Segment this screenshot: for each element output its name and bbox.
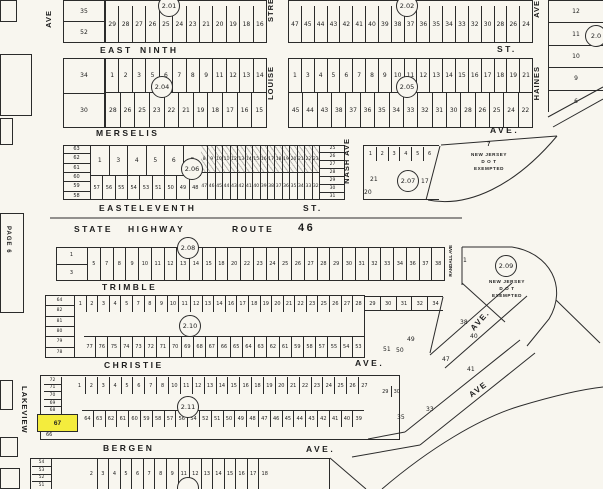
lot-number: 13 [237,146,244,172]
lot-number: 59 [63,181,90,190]
lot-number: 10 [168,377,180,394]
lot-number: 51 [32,481,51,489]
lot-number: 23 [312,146,319,172]
lot-number: 14 [213,296,225,312]
block-number-2-08: 2.08 [177,237,199,259]
lot-number: 38 [460,319,468,326]
lot-number: 72 [144,337,156,357]
block-number-2-09: 2.09 [495,255,517,277]
lot-number: 74 [120,337,132,357]
block-number-2-03: 2.0 [585,25,603,47]
lot-number: 41 [467,366,475,373]
nj-dot-exempted-note: NEW JERSEY D O T EXEMPTED [480,277,534,298]
lot-number: 17 [222,93,237,127]
lot-number: 6 [131,459,143,489]
lot-number: 58 [303,337,315,357]
block-205-bottom-lot-row: 4544433837363534333231302826252422 [289,93,532,127]
lot-number: 81 [45,316,74,326]
lot-number: 6 [339,59,352,92]
lot-number: 10 [138,248,151,280]
lot-number: 32 [312,173,319,199]
lot-number: 28 [106,93,120,127]
lot-number: 1 [106,59,118,92]
lot-number: 4 [108,459,120,489]
lot-number: 27 [358,377,370,394]
lot-number: 15 [227,377,239,394]
lot-number: 41 [352,6,365,42]
lot-number: 52 [199,411,211,427]
street-label-east-ninth: NINTH [140,45,178,55]
block-number-2-04: 2.04 [151,76,173,98]
lot-number: 3 [97,296,109,312]
lot-number: 8 [144,296,156,312]
lot-number: 51 [152,176,164,199]
lot-number: 9 [207,146,214,172]
block-208-left-lot-column: 13 [56,247,88,281]
lot-number: 50 [396,347,404,354]
block-207-top-lot-row: 123456 [365,147,435,161]
lot-number: 55 [327,337,339,357]
lot-number: 4 [109,377,121,394]
lot-number: 12 [226,59,239,92]
block-206-narrow-lot-row: 891011121314151617181920212223 [201,146,319,172]
lot-number: 26 [346,377,358,394]
block-203: 12111096 [548,0,603,112]
lot-number: 12 [230,146,237,172]
lot-number: 79 [45,336,74,346]
lot-number: 6 [423,147,435,161]
street-label-nash-ave: NASH AVE [342,138,351,184]
street-label-merselis: AVE. [490,125,519,135]
lot-number: 17 [481,59,494,92]
lot-number: 17 [247,459,259,489]
block-number-2-07: 2.07 [397,170,419,192]
lot-number: 66 [217,337,229,357]
page-6-label: PAGE 6 [5,226,11,254]
lot-number: 43 [230,173,237,199]
lot-number: 7 [172,59,185,92]
lot-number: 31 [396,297,412,310]
street-label-east-eleventh: EAST [99,203,132,213]
lot-number: 19 [263,377,275,394]
block-206-left-lot-column: 636261605958 [63,145,91,200]
lot-number: 20 [212,6,225,42]
nj-dot-exempted-note: 7 NEW JERSEY D O T EXEMPTED [462,140,516,171]
lot-number: 21 [199,6,212,42]
lot-number: 46 [270,411,282,427]
lot-number: 28 [352,296,364,312]
lot-number: 30 [380,297,396,310]
lot-number: 27 [341,296,353,312]
lot-number: 7 [144,377,156,394]
lot-number: 19 [282,146,289,172]
street-label-route-46: 46 [298,222,315,234]
lot-number: 28 [460,93,474,127]
lot-number: 21 [178,93,193,127]
lot-number: 25 [317,296,329,312]
lot-number: 19 [260,296,272,312]
nj-dot-line: EXEMPTED [462,166,516,171]
lot-number: 2 [86,296,98,312]
lot-number: 13 [239,59,252,92]
street-label-diagonal-ave-upper: AVE. [469,309,492,333]
block-211-bottom-lot-row: 6463626160595857565452515049484746454443… [82,410,364,427]
lot-number: 47 [289,6,301,42]
lot-number: 9 [378,59,391,92]
block-210-bottom-lot-row: 7776757473727170696867666564636261595857… [84,336,364,357]
lot-number: 1 [365,147,376,161]
lot-number: 45 [289,93,302,127]
lot-number: 36 [360,93,374,127]
lot-number: 67 [205,337,217,357]
lot-number: 35 [429,6,442,42]
lot-number: 69 [181,337,193,357]
lot-number: 29 [329,248,342,280]
lot-number: 63 [93,411,105,427]
lot-number: 35 [374,93,388,127]
block-204-bottom-lot-row: 2826252322211918171615 [106,93,266,127]
block-201-lot-row: 292827262524232120191816 [106,6,266,42]
lot-number: 63 [254,337,266,357]
lot-number: 4 [314,59,327,92]
lot-number: 3 [97,459,109,489]
lot-number: 23 [253,248,266,280]
lot-number: 10 [215,146,222,172]
lot-number: 18 [258,459,270,489]
lot-number: 43 [327,6,340,42]
lot-number: 73 [132,337,144,357]
block-211-top-lot-row: 1234567810111213141516181920212223242526… [74,377,370,394]
lot-number: 80 [45,326,74,336]
street-label-east-ninth: EAST [100,45,133,55]
lot-number: 39 [260,173,267,199]
lot-number: 29 [365,297,380,310]
lot-number: 60 [128,411,140,427]
lot-number: 23 [306,296,318,312]
lot-number: 7 [132,296,144,312]
lot-number: 34 [442,6,455,42]
lot-number: 46 [207,173,214,199]
lot-number: 26 [291,248,304,280]
lot-number: 32 [368,248,381,280]
lot-number: 16 [260,146,267,172]
adjacent-page-block [0,380,13,410]
lot-number: 24 [266,248,279,280]
street-label-route-46: STATE [74,224,113,234]
lot-number: 54 [32,459,51,466]
street-label-route-46: HIGHWAY [128,224,185,234]
lot-number: 20 [271,296,283,312]
lot-number: 27 [132,6,145,42]
lot-number: 22 [294,296,306,312]
lot-number: 54 [127,176,139,199]
lot-number: 52 [32,474,51,482]
lot-number: 1 [75,296,86,312]
adjacent-page-block [0,437,18,457]
lot-number: 10 [549,45,603,67]
lot-number: 45 [282,411,294,427]
lot-number: 45 [301,6,314,42]
lot-number: 30 [481,6,494,42]
lot-number: 28 [317,248,330,280]
lot-number: 21 [283,296,295,312]
lot-number: 33 [403,93,417,127]
lot-number: 71 [156,337,168,357]
nj-dot-line: D O T [480,286,534,291]
street-label-louise: LOUISE [266,66,275,100]
block-208-lot-row: 5789101112131415182022232425262728293031… [88,248,444,280]
lot-number: 68 [193,337,205,357]
lot-number: 49 [234,411,246,427]
lot-number: 57 [164,411,176,427]
street-label-merselis: MERSELIS [96,128,159,138]
lot-number: 15 [455,59,468,92]
lot-number: 30 [320,184,345,192]
lot-number: 51 [211,411,223,427]
lot-number: 8 [156,377,168,394]
block-210-top-ext-lot-row: 2930313234 [365,296,443,311]
lot-number: 53 [352,337,364,357]
lot-number: 69 [44,399,61,407]
lot-number: 44 [314,6,327,42]
lot-number: 13 [202,296,214,312]
lot-number: 41 [245,173,252,199]
lot-number: 58 [152,411,164,427]
lot-number: 66 [46,432,52,438]
lot-number: 23 [311,377,323,394]
lot-number: 23 [186,6,199,42]
lot-number: 18 [215,248,228,280]
lot-number: 6 [549,90,603,112]
lot-number: 35 [289,173,296,199]
lot-number: 22 [304,146,311,172]
lot-number: 9 [199,59,212,92]
street-label-trimble: TRIMBLE [102,282,157,292]
lot-number: 70 [169,337,181,357]
street-label-diagonal-ave-lower: AVE [467,380,489,399]
block-206-bottom-lot-row-a: 575655545351504948 [91,175,201,199]
lot-number: 34 [64,59,104,93]
lot-number: 18 [239,6,252,42]
lot-number: 14 [216,377,228,394]
lot-number: 24 [322,377,334,394]
lot-number: 35 [64,1,104,21]
nj-dot-line: D O T [462,159,516,164]
lot-number: 40 [252,173,259,199]
lot-number: 3 [301,59,314,92]
lot-number: 5 [121,377,133,394]
lot-number: 17 [236,296,248,312]
lot-number: 11 [178,296,190,312]
lot-number: 62 [105,411,117,427]
lot-number: 5 [327,59,340,92]
block-210-top-lot-row: 1234578910111213141617181920212223252627… [75,296,364,312]
lot-number: 11 [212,59,225,92]
lot-number: 16 [468,59,481,92]
lot-number: 75 [107,337,119,357]
lot-number: 32 [417,93,431,127]
lot-number: 26 [475,93,489,127]
lot-number: 23 [149,93,164,127]
street-label-haines: HAINES [532,66,541,100]
lot-number: 28 [118,6,131,42]
block-number-2-11: 2.11 [177,396,199,418]
highlighted-lot-67[interactable]: 67 [37,414,78,432]
lot-number: 30 [391,386,403,397]
lot-number: 19 [193,93,208,127]
lot-number: 34 [393,248,406,280]
lot-number: 17 [267,146,274,172]
lot-number: 62 [63,153,90,162]
lot-number: 70 [44,391,61,399]
lot-number: 21 [519,59,532,92]
lot-number: 37 [419,248,432,280]
street-label-randall-ave: RANDALL AVE [448,245,453,277]
lot-number: 36 [406,248,419,280]
lot-number: 45 [215,173,222,199]
lot-number: 12 [164,248,177,280]
lot-number: 20 [364,189,372,196]
lot-number: 64 [242,337,254,357]
lot-number: 29 [106,6,118,42]
lot-number: 44 [293,411,305,427]
lot-number: 5 [120,296,132,312]
lot-number: 15 [202,248,215,280]
lot-number: 50 [164,176,176,199]
lot-number: 44 [222,173,229,199]
lot-number: 18 [207,93,222,127]
lot-number: 14 [245,146,252,172]
street-label-east-ninth: ST. [497,44,517,54]
block-206-bottom-lot-row-b: 47464544434241403938373635343332 [201,172,319,199]
lot-number: 1 [463,257,467,264]
lot-number: 18 [274,146,281,172]
lot-number: 40 [341,411,353,427]
lot-number: 16 [239,377,251,394]
lot-number: 22 [518,93,532,127]
lot-number: 24 [519,6,532,42]
lot-number: 24 [503,93,517,127]
lot-number: 12 [549,1,603,22]
lot-number: 76 [95,337,107,357]
lot-number: 31 [355,248,368,280]
street-label-christie: AVE. [355,358,384,368]
adjacent-page-block [0,54,32,116]
lot-number: 2 [376,147,388,161]
lot-number: 25 [278,248,291,280]
block-204-top-lot-row: 1235678911121314 [106,59,266,93]
lot-number: 14 [253,59,266,92]
lot-number: 6 [164,146,183,175]
lot-number: 56 [102,176,114,199]
lot-number: 15 [252,146,259,172]
lot-number: 43 [305,411,317,427]
lot-number: 47 [442,356,450,363]
lot-number: 30 [446,93,460,127]
lot-number: 42 [317,411,329,427]
lot-number: 15 [251,93,266,127]
lot-number: 7 [462,142,516,148]
lot-number: 6 [132,377,144,394]
lot-number: 16 [237,93,252,127]
lot-number: 40 [470,333,478,340]
lot-number: 57 [91,176,102,199]
lot-number: 22 [299,377,311,394]
lot-number: 36 [416,6,429,42]
block-number-2-10: 2.10 [179,315,201,337]
street-label-east-eleventh: ELEVENTH [131,203,196,213]
nj-dot-line: NEW JERSEY [480,279,534,284]
lot-number: 19 [226,6,239,42]
lot-number: 5 [411,147,423,161]
lot-number: 9 [155,296,167,312]
lot-number: 38 [431,248,444,280]
lot-number: 4 [127,146,146,175]
lot-number: 37 [345,93,359,127]
lot-number: 82 [45,305,74,315]
lot-number: 32 [411,297,427,310]
lot-number: 27 [304,248,317,280]
lot-number: 12 [190,296,202,312]
lot-number: 21 [287,377,299,394]
lot-number: 34 [427,297,443,310]
lot-number: 33 [304,173,311,199]
lot-number: 13 [429,59,442,92]
lot-number: 25 [489,93,503,127]
lot-number: 28 [494,6,507,42]
lot-number: 61 [63,163,90,172]
lot-number: 36 [282,173,289,199]
lot-number: 31 [320,192,345,200]
lot-number: 12 [192,377,204,394]
lot-number: 26 [145,6,158,42]
lot-number: 1 [91,146,109,175]
lot-number: 65 [230,337,242,357]
lot-number: 9 [549,67,603,89]
adjacent-page-block [0,0,17,22]
lot-number: 5 [88,248,100,280]
lot-number: 2 [85,377,97,394]
lot-number: 59 [291,337,303,357]
adjacent-page-block [0,213,24,313]
lot-number: 22 [240,248,253,280]
street-label-ave-top-left: AVE [44,10,53,28]
street-label-lakeview: LAKEVIEW [20,386,29,434]
lot-number: 53 [139,176,151,199]
lot-number: 9 [166,459,178,489]
lot-number: 7 [352,59,365,92]
block-211-right-lot-row: 2930 [380,386,402,397]
lot-number: 71 [44,384,61,392]
adjacent-page-block [0,468,20,489]
lot-number: 12 [416,59,429,92]
lot-number: 3 [132,59,145,92]
lot-number: 3 [109,146,128,175]
lot-number: 33 [380,248,393,280]
lot-number: 72 [44,377,61,384]
lot-number: 5 [120,459,132,489]
lot-number: 18 [248,296,260,312]
lot-number: 7 [100,248,113,280]
block-number-2-05: 2.05 [396,76,418,98]
lot-number: 38 [267,173,274,199]
lot-number: 33 [426,406,434,413]
lot-number: 4 [399,147,411,161]
lot-number: 26 [506,6,519,42]
block-nw-lower: 3430 [63,58,105,128]
lot-number: 62 [266,337,278,357]
lot-number: 19 [506,59,519,92]
